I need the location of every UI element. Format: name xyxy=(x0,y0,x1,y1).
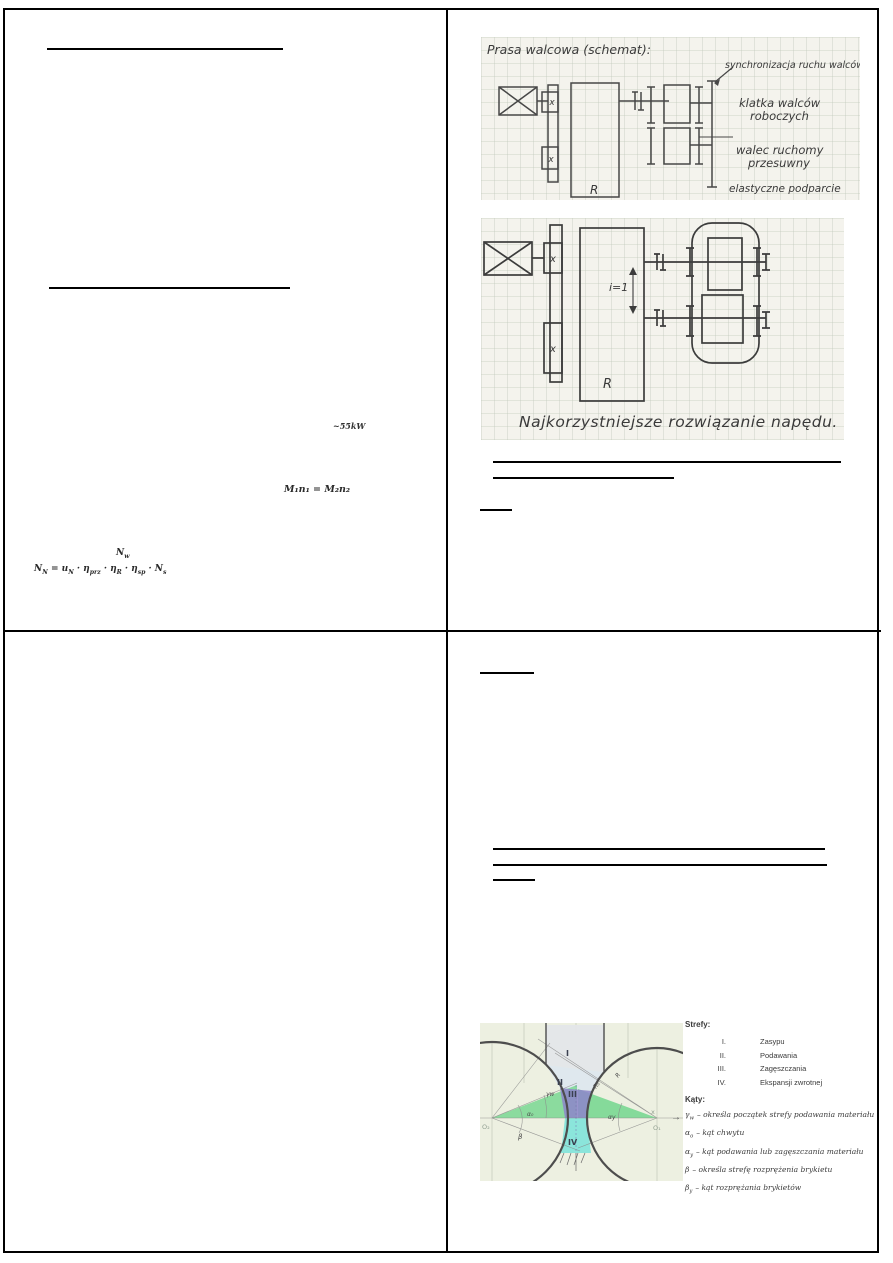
zone-num: III. xyxy=(711,1062,726,1076)
zone-legend-row-1: I.Zasypu xyxy=(685,1035,885,1049)
figure2-caption: Najkorzystniejsze rozwiązanie napędu. xyxy=(519,413,838,431)
center-o2-label: O₂ xyxy=(482,1123,490,1131)
underline-topright-short xyxy=(480,509,512,511)
underline-bottomright-short-1 xyxy=(480,672,534,674)
underline-topright-long xyxy=(493,461,841,463)
zones-legend-title: Strefy: xyxy=(685,1019,885,1031)
underline-topleft-1 xyxy=(47,48,283,50)
gearbox-label: R xyxy=(603,377,612,392)
angle-legend-row-1: γw– określa początek strefy podawania ma… xyxy=(685,1108,885,1126)
coupling-x-label-1: x xyxy=(548,98,555,108)
sync-label: synchronizacja ruchu walców xyxy=(725,60,860,71)
angles-legend-title: Kąty: xyxy=(685,1094,885,1106)
zone-1-numeral: I xyxy=(566,1049,569,1058)
coupling-x-label-2: x xyxy=(547,155,554,165)
angle-legend-row-3: αy– kąt podawania lub zagęszczania mater… xyxy=(685,1145,885,1163)
document-page: ~55kW M₁n₁ = M₂n₂ Nw NN = uN · ηprz · ηR… xyxy=(0,0,893,1263)
graph-paper-grid xyxy=(481,218,844,440)
drive-solution-figure: x x i=1 R Najkorzystniejsze rozwiązanie … xyxy=(481,218,844,440)
zone-4-numeral: IV xyxy=(568,1138,578,1147)
zone-3-numeral: III xyxy=(568,1090,577,1099)
underline-bottomright-short-2 xyxy=(493,879,535,881)
power-note: ~55kW xyxy=(333,421,365,431)
beta-label: β xyxy=(518,1133,523,1141)
zone-label: Zasypu xyxy=(760,1037,785,1046)
coupling-x-label-2: x xyxy=(549,344,556,355)
zone-legend-row-3: III.Zagęszczania xyxy=(685,1062,885,1076)
zone-2-numeral: II xyxy=(557,1078,563,1087)
moment-balance-formula: M₁n₁ = M₂n₂ xyxy=(284,484,350,495)
alpha-0-label: α₀ xyxy=(527,1111,534,1118)
compaction-zones-diagram: I II III IV γw α₀ β αy R R₀ O₂ O₁ x xyxy=(480,1023,683,1181)
movable-roll-label-line1: walec ruchomy xyxy=(736,143,824,157)
underline-topright-medium xyxy=(493,477,674,479)
angle-legend-row-4: β– określa strefę rozprężenia brykietu xyxy=(685,1163,885,1181)
angle-legend-row-5: βy– kąt rozprężania brykietów xyxy=(685,1181,885,1199)
drive-power-formula: NN = uN · ηprz · ηR · ηsp · Ns xyxy=(34,564,167,576)
roll-press-schematic-figure: Prasa walcowa (schemat): x x xyxy=(481,37,860,200)
x-axis-label: x xyxy=(651,1108,655,1116)
underline-bottomright-long-1 xyxy=(493,848,825,850)
zone-label: Ekspansji zwrotnej xyxy=(760,1078,822,1087)
figure1-title: Prasa walcowa (schemat): xyxy=(487,42,651,57)
nw-symbol: Nw xyxy=(116,548,130,560)
gamma-w-label: γw xyxy=(546,1091,555,1098)
angle-legend-row-2: αo– kąt chwytu xyxy=(685,1126,885,1144)
axis-arrow-glyph: → xyxy=(671,1112,681,1123)
movable-roll-label-line2: przesuwny xyxy=(747,156,810,170)
zone-legend-row-2: II.Podawania xyxy=(685,1049,885,1063)
zone-legend-row-4: IV.Ekspansji zwrotnej xyxy=(685,1076,885,1090)
quadrant-divider-horizontal xyxy=(3,630,881,632)
zone-label: Podawania xyxy=(760,1051,797,1060)
alpha-y-label: αy xyxy=(608,1114,616,1121)
gearbox-label: R xyxy=(590,183,598,197)
stand-label-line1: klatka walców xyxy=(739,96,821,110)
stand-label-line2: roboczych xyxy=(750,109,809,123)
zone-num: I. xyxy=(711,1035,726,1049)
zone-num: IV. xyxy=(711,1076,726,1090)
zone-label: Zagęszczania xyxy=(760,1064,806,1073)
coupling-x-label-1: x xyxy=(549,254,556,265)
ratio-label: i=1 xyxy=(609,281,628,294)
zones-legend: Strefy: I.Zasypu II.Podawania III.Zagęsz… xyxy=(685,1019,885,1199)
elastic-support-label: elastyczne podparcie xyxy=(729,183,841,195)
zone-1-area xyxy=(546,1025,604,1072)
underline-bottomright-long-2 xyxy=(493,864,827,866)
zone-num: II. xyxy=(711,1049,726,1063)
center-o1-label: O₁ xyxy=(653,1124,661,1132)
underline-topleft-2 xyxy=(49,287,290,289)
